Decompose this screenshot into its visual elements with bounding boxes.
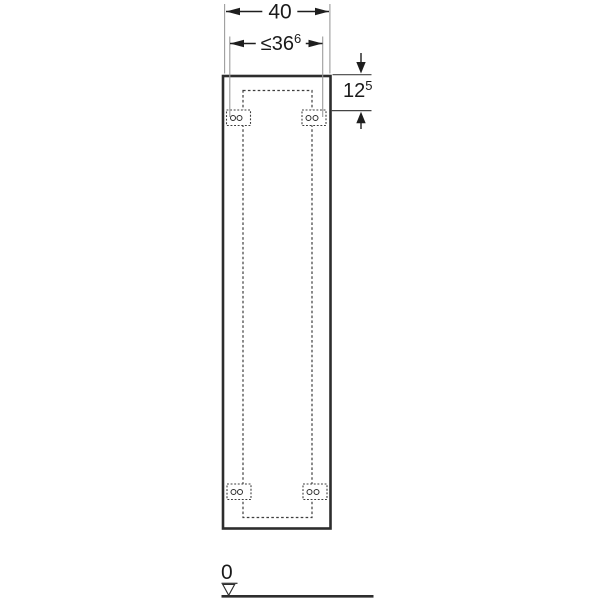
outer-width-value: 40: [268, 1, 291, 24]
cabinet-outline: [223, 76, 331, 529]
screw-hole: [231, 116, 236, 121]
arrowhead-right: [309, 40, 323, 48]
datum-zero-value: 0: [221, 561, 233, 584]
screw-hole: [238, 490, 243, 495]
screw-hole: [307, 490, 312, 495]
arrowhead-up: [356, 112, 365, 124]
arrowhead-down: [356, 62, 365, 74]
arrowhead-right: [315, 8, 329, 16]
arrowhead-left: [230, 40, 244, 48]
screw-hole: [306, 116, 311, 121]
mounting-bracket-bottom-right: [303, 484, 327, 500]
drawing-linework: [0, 0, 600, 600]
fastening-width-superscript: 6: [294, 31, 301, 46]
datum-zero-label: 0: [221, 562, 233, 583]
top-offset-superscript: 5: [365, 78, 372, 93]
top-offset-label: 125: [343, 79, 372, 101]
arrowhead-left: [226, 8, 240, 16]
screw-hole: [231, 490, 236, 495]
floor-datum: [222, 583, 374, 596]
outer-width-label: 40: [262, 2, 297, 23]
mounting-bracket-bottom-left: [227, 484, 251, 500]
screw-hole: [314, 490, 319, 495]
fastening-width-label: ≤366: [256, 32, 306, 54]
datum-triangle-icon: [223, 585, 235, 596]
top-offset-main: 12: [343, 80, 365, 102]
technical-drawing-canvas: 40 ≤366 125 0: [0, 0, 600, 600]
fastening-width-main: ≤36: [261, 33, 294, 55]
cabinet-body: [223, 76, 331, 529]
screw-hole: [313, 116, 318, 121]
screw-hole: [237, 116, 242, 121]
